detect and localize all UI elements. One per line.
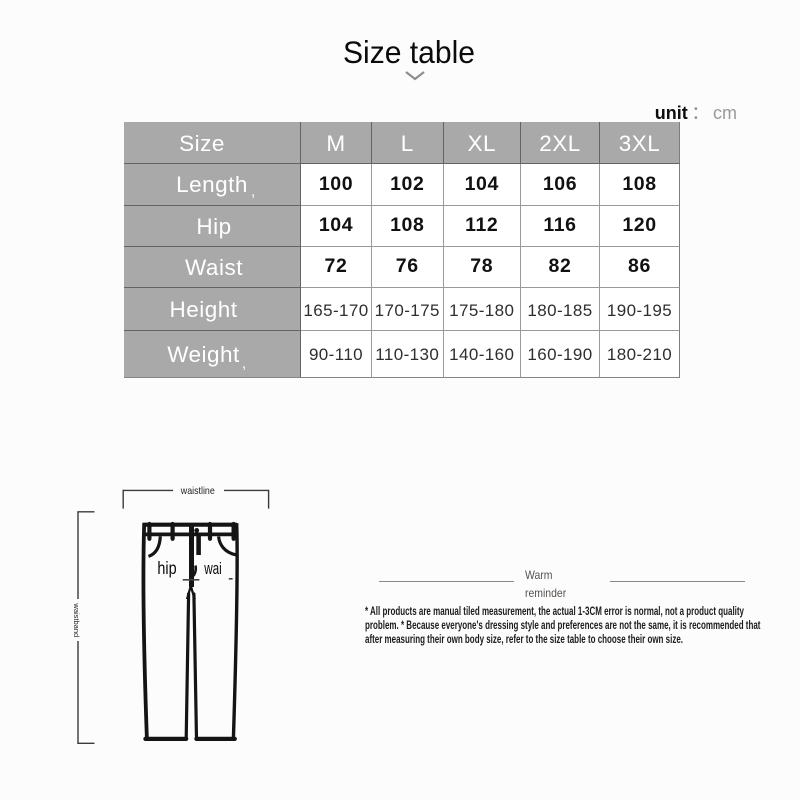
svg-text:waistline: waistline (180, 485, 215, 497)
svg-text:wai: wai (203, 560, 221, 578)
svg-text:waistband: waistband (72, 602, 81, 637)
svg-text:hip: hip (157, 558, 176, 578)
